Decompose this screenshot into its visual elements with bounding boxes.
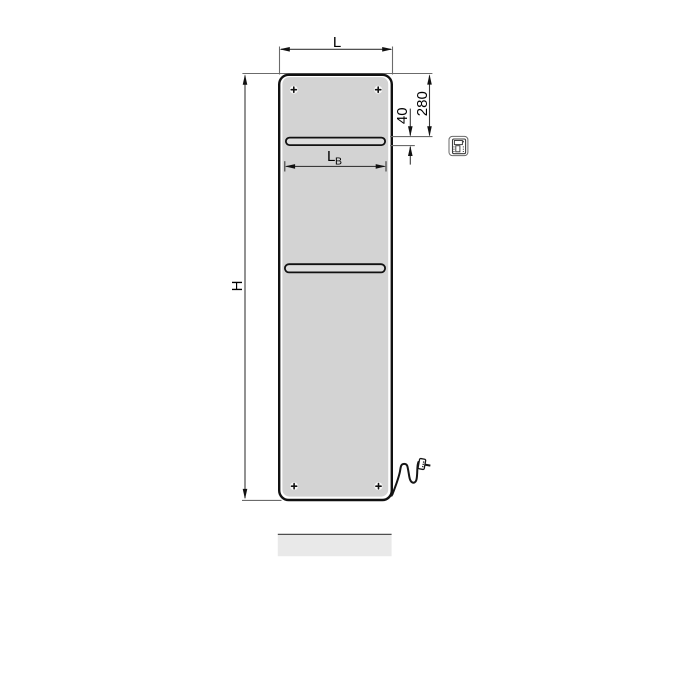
svg-text:40: 40 [394,107,411,124]
svg-text:280: 280 [414,91,431,116]
svg-text:H: H [229,281,246,292]
svg-text:L: L [333,34,341,51]
svg-text:B: B [335,156,342,168]
